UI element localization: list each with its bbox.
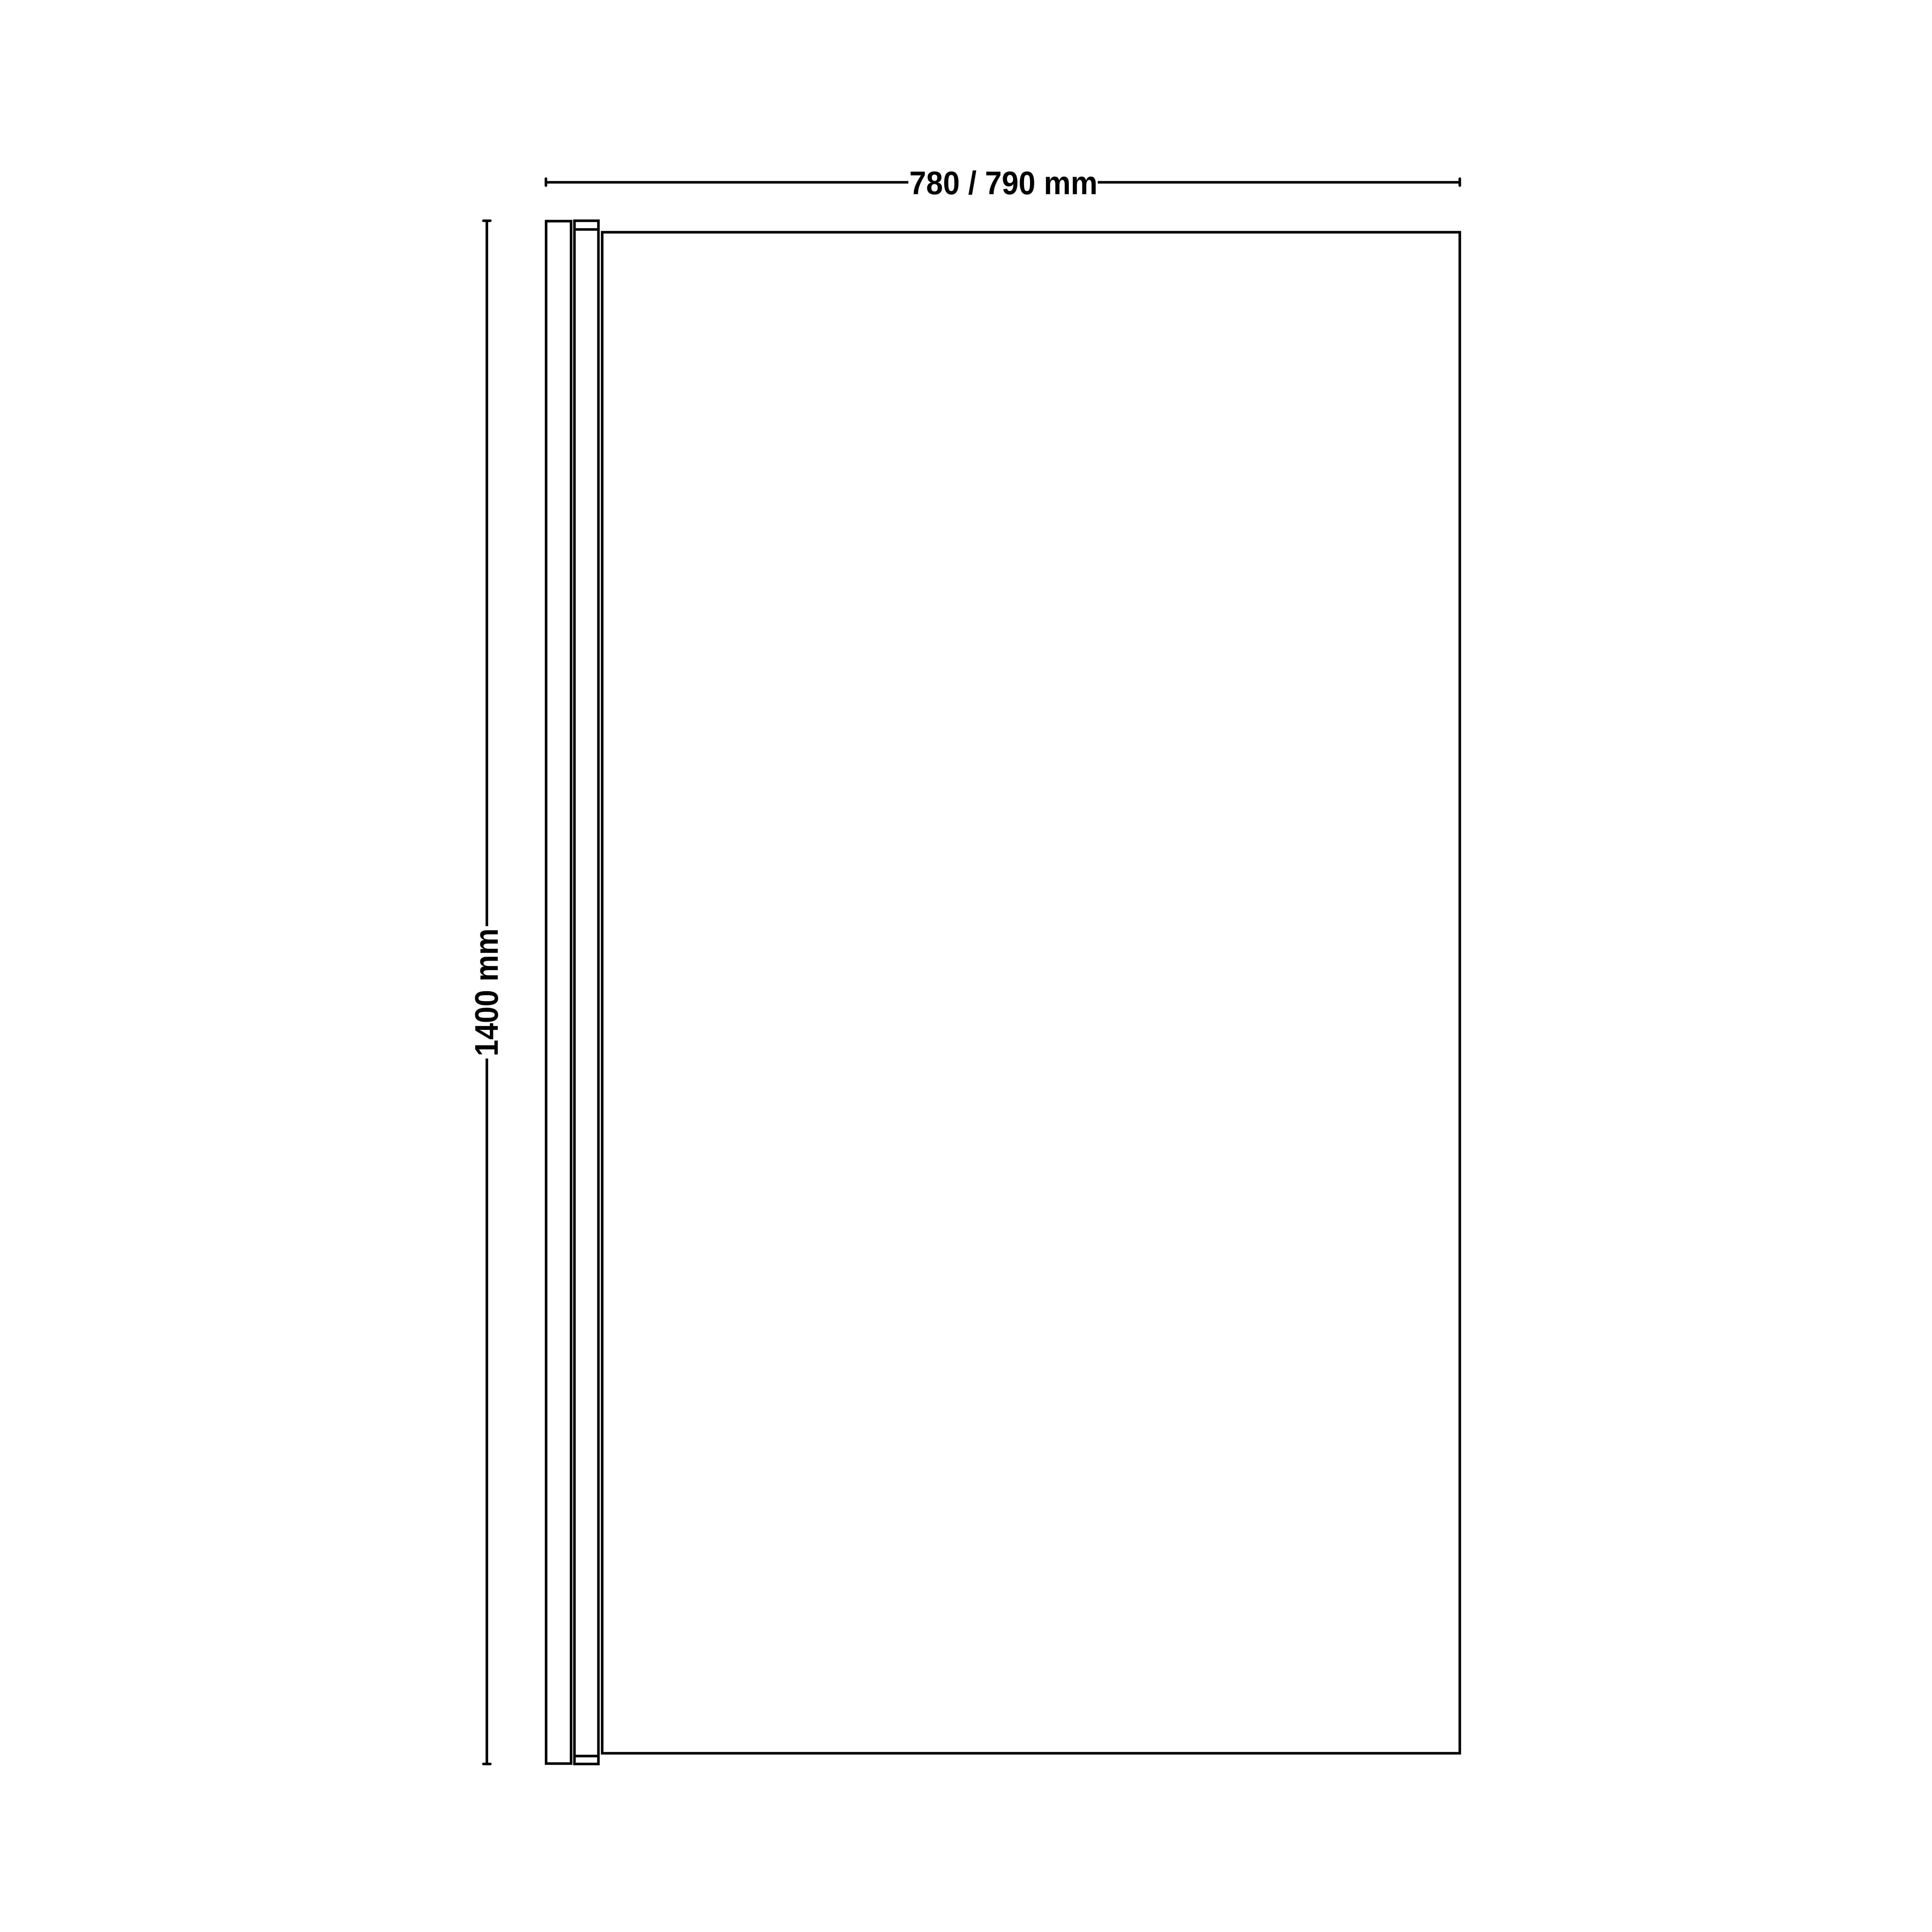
svg-text:1400 mm: 1400 mm: [468, 929, 505, 1057]
svg-text:780 / 790 mm: 780 / 790 mm: [910, 164, 1098, 201]
